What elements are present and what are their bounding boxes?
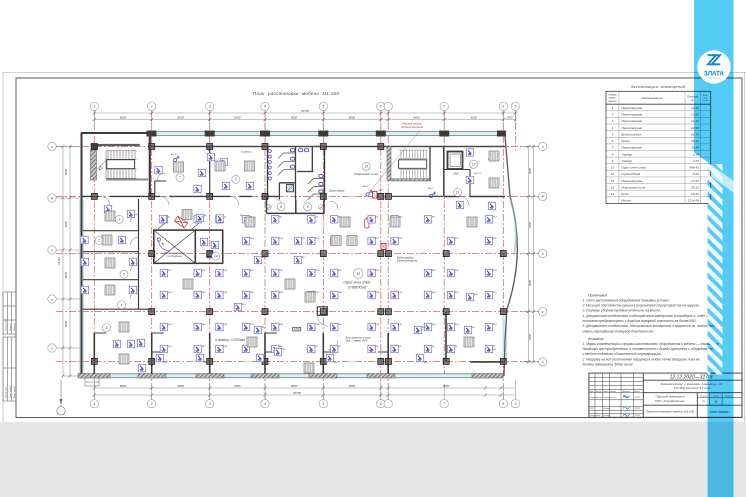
svg-text:1. Сети расположения оборудов: 1. Сети расположения оборудования показа… <box>583 298 670 302</box>
svg-text:6600: 6600 <box>120 384 127 388</box>
svg-text:1214,68: 1214,68 <box>688 199 699 203</box>
svg-text:12: 12 <box>611 179 615 183</box>
svg-text:10: 10 <box>356 272 360 276</box>
svg-text:1. Марки комплектации и фирма: 1. Марки комплектации и фирма-изготовите… <box>583 342 719 346</box>
svg-text:6000: 6000 <box>349 115 356 119</box>
svg-text:6: 6 <box>380 402 382 406</box>
svg-text:Стадия: Стадия <box>700 394 709 397</box>
svg-text:План расстановки мебели М1:100: План расстановки мебели М1:100 <box>253 91 339 96</box>
svg-text:3,34: 3,34 <box>693 159 699 163</box>
svg-text:м²: м² <box>691 99 694 102</box>
svg-text:6000: 6000 <box>349 384 356 388</box>
svg-text:Заказчики при приобретении в с: Заказчики при приобретении в соответстви… <box>583 347 713 351</box>
svg-text:Взамен: Взамен <box>10 323 12 331</box>
svg-text:2. Нагрузка на пол (постоянна: 2. Нагрузка на пол (постоянная нагрузка)… <box>582 357 700 361</box>
svg-text:6: 6 <box>235 178 237 182</box>
svg-text:Видеодомофона: Видеодомофона <box>397 259 418 263</box>
svg-text:ГИП: ГИП <box>590 408 595 410</box>
svg-text:ООО "ЗЛАТА": ООО "ЗЛАТА" <box>710 410 731 414</box>
svg-text:6: 6 <box>380 105 382 109</box>
svg-text:ООО «Стройматика»: ООО «Стройматика» <box>655 399 686 403</box>
svg-text:5: 5 <box>322 402 324 406</box>
svg-text:6000: 6000 <box>234 384 241 388</box>
svg-text:6400: 6400 <box>413 115 420 119</box>
svg-text:6000: 6000 <box>291 384 298 388</box>
svg-text:8: 8 <box>502 105 504 109</box>
svg-text:S=888,42м2: S=888,42м2 <box>348 285 367 289</box>
svg-text:1: 1 <box>93 105 95 109</box>
svg-text:Лифтовый холл: Лифтовый холл <box>620 185 645 189</box>
svg-text:5: 5 <box>106 326 108 330</box>
svg-text:1: 1 <box>612 106 614 110</box>
svg-text:4900: 4900 <box>528 167 532 174</box>
svg-text:6000: 6000 <box>291 115 298 119</box>
svg-text:потолков предусмотреть с класс: потолков предусмотреть с классом пожарно… <box>583 319 697 323</box>
svg-text:Тамбур: Тамбур <box>621 152 632 156</box>
svg-text:6000: 6000 <box>178 384 185 388</box>
svg-text:13: 13 <box>611 185 615 189</box>
svg-text:и: и <box>542 360 544 364</box>
svg-text:7: 7 <box>443 402 445 406</box>
svg-text:16А, с зазем. IP20: 16А, с зазем. IP20 <box>346 339 368 343</box>
svg-text:2: 2 <box>97 239 100 243</box>
svg-text:11: 11 <box>611 172 614 176</box>
svg-text:888,42: 888,42 <box>689 166 699 170</box>
svg-text:7: 7 <box>443 105 445 109</box>
svg-text:Офис-опен спэйс: Офис-опен спэйс <box>343 281 371 285</box>
svg-text:6000: 6000 <box>64 271 68 278</box>
svg-text:6000: 6000 <box>64 320 68 327</box>
svg-text:Наименование: Наименование <box>642 96 663 100</box>
svg-text:(Лифтовой холл): (Лифтовой холл) <box>354 172 379 176</box>
svg-text:1: 1 <box>93 402 95 406</box>
svg-text:50700: 50700 <box>301 109 309 113</box>
svg-text:иметь сертификат пожарной безо: иметь сертификат пожарной безопасности. <box>583 329 655 333</box>
svg-text:ЗЛАТА: ЗЛАТА <box>704 70 724 77</box>
svg-text:12.20: 12.20 <box>635 415 641 417</box>
svg-text:18150: 18150 <box>57 257 61 265</box>
svg-text:6000: 6000 <box>234 115 241 119</box>
svg-text:h помещ. =2700мм: h помещ. =2700мм <box>215 338 245 342</box>
svg-text:27,43: 27,43 <box>690 179 699 183</box>
svg-text:2. Несущая способность крыши: 2. Несущая способность крыши в результат… <box>582 304 701 308</box>
svg-text:Офис-опен спэйс: Офис-опен спэйс <box>621 166 646 170</box>
svg-text:Переговорная: Переговорная <box>621 179 642 183</box>
svg-text:12.12.2020—327-9: 12.12.2020—327-9 <box>670 375 713 381</box>
svg-text:Кухня: Кухня <box>621 139 630 143</box>
svg-text:11: 11 <box>456 191 460 195</box>
svg-text:2: 2 <box>150 402 153 406</box>
svg-text:9: 9 <box>514 105 516 109</box>
svg-text:4: 4 <box>264 402 266 406</box>
svg-text:8,68: 8,68 <box>693 172 699 176</box>
svg-text:и мебель подлежат обязательной: и мебель подлежат обязательной сертифика… <box>583 352 662 356</box>
svg-text:П: П <box>703 400 705 404</box>
svg-text:1: 1 <box>118 218 120 222</box>
svg-text:Хорошенина: Хорошенина <box>602 397 616 399</box>
svg-text:Ресепшн под заказ: Ресепшн под заказ <box>164 252 184 255</box>
svg-text:щений: щений <box>608 99 617 103</box>
svg-text:Инв № подл.: Инв № подл. <box>5 386 8 398</box>
svg-text:4: 4 <box>121 303 123 307</box>
svg-text:28,10: 28,10 <box>690 185 699 189</box>
svg-text:5800: 5800 <box>528 221 532 228</box>
svg-text:9: 9 <box>514 402 516 406</box>
svg-text:50700: 50700 <box>293 391 301 395</box>
svg-text:Кравец: Кравец <box>603 415 611 417</box>
svg-text:п: п <box>51 145 53 149</box>
svg-text:Переговорная: Переговорная <box>621 113 642 117</box>
svg-text:Офисное помещение: Офисное помещение <box>656 395 685 399</box>
svg-text:Примечания:: Примечания: <box>588 293 608 297</box>
svg-text:КШ 1.2: КШ 1.2 <box>474 173 482 175</box>
svg-text:л: л <box>50 248 53 252</box>
svg-text:Переговорная: Переговорная <box>621 126 642 130</box>
svg-text:11: 11 <box>715 400 718 404</box>
svg-text:2400: 2400 <box>452 173 459 176</box>
svg-text:13: 13 <box>364 165 368 169</box>
svg-text:Подпись: Подпись <box>622 390 630 393</box>
svg-text:6000: 6000 <box>178 115 185 119</box>
svg-text:Экспликация помещений: Экспликация помещений <box>631 84 686 89</box>
svg-text:9: 9 <box>307 205 309 209</box>
svg-text:должна превышать 500кг на м2.: должна превышать 500кг на м2. <box>583 363 634 367</box>
svg-text:изготовление: изготовление <box>167 256 183 258</box>
svg-text:ВЩ 1: ВЩ 1 <box>428 188 434 190</box>
svg-text:п: п <box>542 145 544 149</box>
svg-text:3: 3 <box>209 105 211 109</box>
svg-text:(Щитовая): (Щитовая) <box>329 189 344 193</box>
svg-text:12: 12 <box>472 163 476 167</box>
svg-text:ЗАО МКЦ "Кристалл" 9-й этаж: ЗАО МКЦ "Кристалл" 9-й этаж <box>674 387 711 390</box>
svg-text:5: 5 <box>612 132 614 136</box>
svg-text:Внимание:: Внимание: <box>588 337 604 341</box>
svg-text:Кравец: Кравец <box>603 408 611 410</box>
svg-text:6600: 6600 <box>120 115 127 119</box>
svg-text:8: 8 <box>502 402 504 406</box>
svg-text:6000: 6000 <box>64 168 68 175</box>
svg-text:Взам. инв №: Взам. инв № <box>13 385 16 398</box>
svg-text:3: 3 <box>612 119 614 123</box>
svg-text:Гардеробная: Гардеробная <box>621 172 640 176</box>
svg-text:группа компаний: группа компаний <box>707 77 720 80</box>
svg-text:Дата: Дата <box>633 391 640 393</box>
svg-text:4. Декоративно-отделочные и о: 4. Декоративно-отделочные и облицовочные… <box>583 314 709 318</box>
svg-text:10: 10 <box>611 166 615 170</box>
svg-text:Тамбур: Тамбур <box>621 159 632 163</box>
svg-text:Итого:: Итого: <box>621 199 632 203</box>
svg-text:Изм: Изм <box>590 391 594 393</box>
svg-text:8: 8 <box>612 152 614 156</box>
svg-text:2: 2 <box>150 105 153 109</box>
svg-text:7: 7 <box>612 146 614 150</box>
svg-text:Видеодомофона: Видеодомофона <box>402 125 424 129</box>
svg-text:План расстановки мебели М1:100: План расстановки мебели М1:100 <box>646 409 695 413</box>
svg-text:ВЩ 2: ВЩ 2 <box>363 186 369 188</box>
svg-text:и: и <box>51 346 53 350</box>
svg-text:3: 3 <box>209 402 211 406</box>
svg-text:3. Размеры уборная проёмов ут: 3. Размеры уборная проёмов уточнить на м… <box>583 309 662 313</box>
svg-text:9: 9 <box>612 159 614 163</box>
svg-text:5. Декоративно-отделочные, об: 5. Декоративно-отделочные, облицовочные … <box>583 324 716 328</box>
svg-text:л: л <box>541 252 544 256</box>
svg-text:6000: 6000 <box>471 115 478 119</box>
svg-text:12.20: 12.20 <box>635 397 641 399</box>
svg-text:8: 8 <box>280 205 282 209</box>
svg-text:Кроб: Кроб <box>621 192 628 196</box>
svg-text:Лист: Лист <box>602 391 609 393</box>
svg-text:0,000: 0,000 <box>294 328 301 331</box>
svg-text:Кол.уч: Кол.уч <box>596 391 603 393</box>
svg-text:9000: 9000 <box>443 384 450 388</box>
svg-text:Согласовано: Согласовано <box>6 318 8 331</box>
svg-text:Переговорная: Переговорная <box>621 106 642 110</box>
svg-text:Переговорная: Переговорная <box>621 146 642 150</box>
svg-text:Подп. и дата: Подп. и дата <box>9 385 12 398</box>
svg-text:14: 14 <box>611 192 615 196</box>
svg-text:1500: 1500 <box>506 115 513 119</box>
svg-text:Т.контроль: Т.контроль <box>590 415 601 417</box>
svg-text:10,86: 10,86 <box>691 192 699 196</box>
svg-text:6000: 6000 <box>64 220 68 227</box>
svg-text:4: 4 <box>264 105 266 109</box>
svg-text:6: 6 <box>612 139 614 143</box>
svg-text:КШ 1.1: КШ 1.1 <box>171 154 179 156</box>
svg-text:Подпись: Подпись <box>13 323 16 331</box>
svg-text:2: 2 <box>611 113 614 117</box>
svg-text:4: 4 <box>612 126 614 130</box>
svg-text:4900: 4900 <box>528 333 532 340</box>
svg-text:Видеостудия: Видеостудия <box>621 132 641 136</box>
svg-text:В=1500мм: В=1500мм <box>241 152 252 154</box>
svg-text:3: 3 <box>123 272 125 276</box>
svg-text:Разработал: Разработал <box>590 397 603 399</box>
svg-text:4900: 4900 <box>528 279 532 286</box>
svg-text:14: 14 <box>214 254 218 258</box>
svg-text:5: 5 <box>322 105 324 109</box>
svg-text:12.20: 12.20 <box>635 408 641 410</box>
svg-text:Переговорная: Переговорная <box>621 119 642 123</box>
svg-text:7: 7 <box>179 176 181 180</box>
